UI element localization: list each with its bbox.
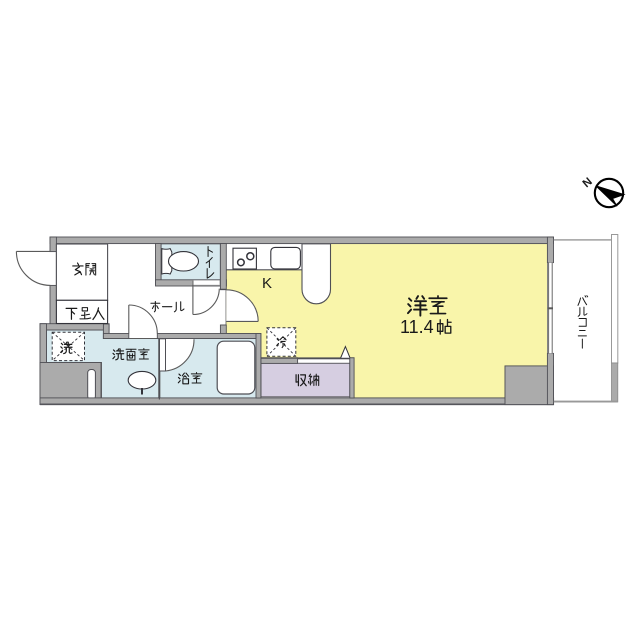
svg-text:11.4: 11.4: [400, 317, 434, 337]
svg-text:K: K: [262, 275, 272, 292]
